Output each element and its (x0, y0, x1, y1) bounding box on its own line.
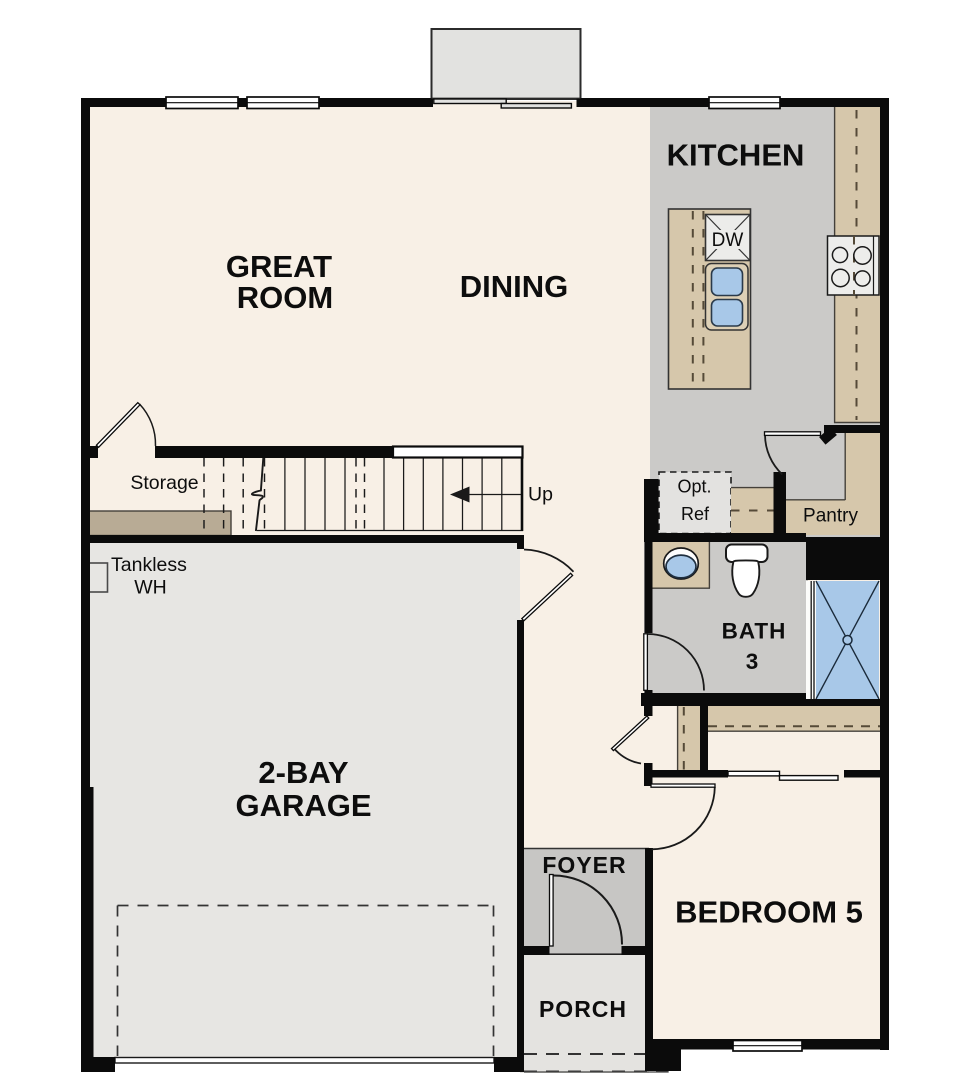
svg-text:Pantry: Pantry (803, 506, 858, 527)
svg-text:3: 3 (746, 649, 760, 674)
svg-text:GREAT: GREAT (226, 249, 332, 284)
svg-text:Storage: Storage (130, 472, 198, 494)
svg-text:BEDROOM 5: BEDROOM 5 (675, 895, 863, 930)
svg-text:Up: Up (528, 484, 553, 506)
svg-text:Opt.: Opt. (677, 477, 711, 497)
svg-text:DW: DW (712, 230, 744, 251)
svg-text:2-BAY: 2-BAY (258, 755, 348, 790)
svg-text:FOYER: FOYER (542, 852, 626, 878)
svg-text:DINING: DINING (460, 269, 569, 304)
svg-text:KITCHEN: KITCHEN (667, 138, 805, 173)
svg-text:Ref: Ref (681, 504, 710, 524)
svg-text:ROOM: ROOM (237, 280, 333, 315)
svg-text:PORCH: PORCH (539, 996, 627, 1022)
svg-text:WH: WH (134, 577, 167, 599)
svg-text:BATH: BATH (722, 619, 787, 644)
svg-text:Tankless: Tankless (111, 554, 187, 576)
svg-text:GARAGE: GARAGE (235, 788, 371, 823)
